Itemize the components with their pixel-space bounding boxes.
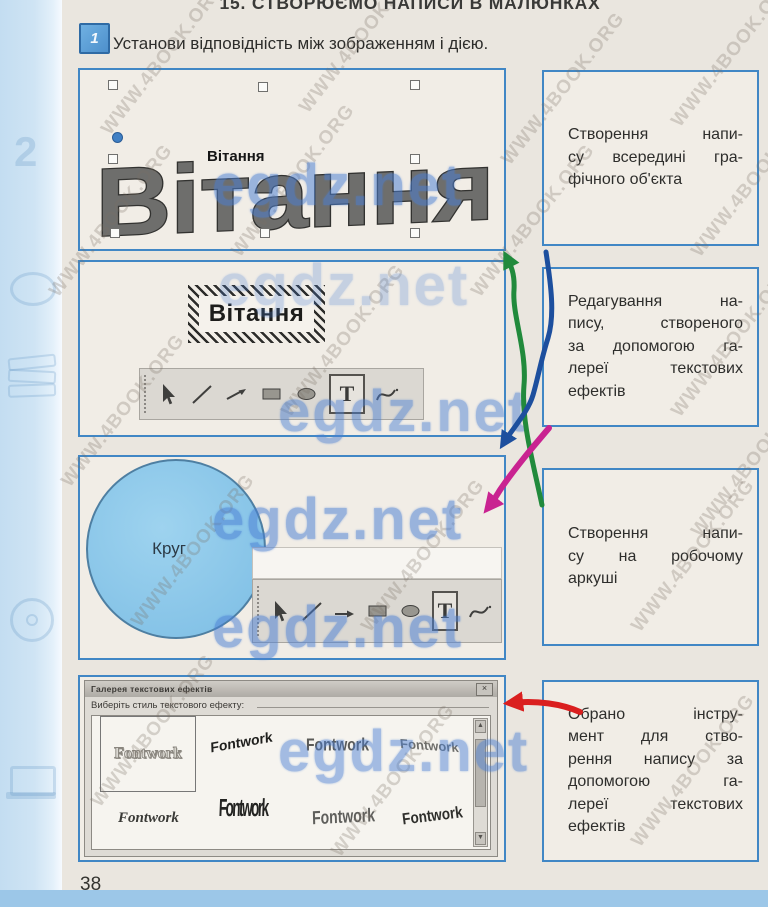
description-line: ефектів: [568, 381, 743, 404]
wordart-graphic: Вітання: [94, 122, 498, 248]
match-image-fontwork-gallery[interactable]: Галерея текстових ефектів × Виберіть сти…: [78, 675, 506, 862]
match-description-tool-selected[interactable]: Обрано інстру- мент для ство- рення напи…: [542, 680, 759, 862]
description-line: аркуші: [568, 568, 743, 591]
dialog-instruction: Виберіть стиль текстового ефекту:: [91, 700, 244, 711]
scroll-down-icon[interactable]: ▼: [475, 832, 486, 845]
description-line: ефектів: [568, 816, 743, 839]
circle-label: Круг: [152, 539, 186, 559]
description-line: пису, створеного: [568, 313, 743, 336]
description-line: су на робочому: [568, 546, 743, 569]
text-tool-button[interactable]: T: [329, 374, 365, 414]
text-frame-hatched-border: Вітання: [188, 285, 325, 343]
description-line: лереї текстових: [568, 358, 743, 381]
fontwork-style-option[interactable]: Fontwork: [399, 736, 459, 755]
workbook-page: 2 WWW.4BOOK.ORGWWW.4BOOK.ORGWWW.4BOOK.OR…: [0, 0, 768, 907]
books-icon: [8, 369, 57, 384]
scroll-up-icon[interactable]: ▲: [475, 720, 486, 733]
match-image-text-frame[interactable]: Вітання T: [78, 260, 506, 437]
selection-handle[interactable]: [260, 228, 270, 238]
match-image-circle[interactable]: Круг T: [78, 455, 506, 660]
arrow-tool-icon[interactable]: [224, 379, 250, 409]
text-frame: Вітання: [199, 296, 314, 332]
pointer-tool-icon[interactable]: [154, 379, 180, 409]
curve-tool-icon[interactable]: [374, 379, 400, 409]
rectangle-tool-icon[interactable]: [259, 379, 285, 409]
selection-handle[interactable]: [410, 228, 420, 238]
line-tool-icon[interactable]: [189, 379, 215, 409]
fontwork-style-option[interactable]: Fontwork: [218, 793, 268, 822]
description-line: допомогою га-: [568, 771, 743, 794]
description-line: Обрано інстру-: [568, 704, 743, 727]
fontwork-style-option-selected[interactable]: Fontwork: [100, 716, 196, 792]
fontwork-style-option[interactable]: Fontwork: [210, 728, 273, 755]
drawing-toolbar: T: [252, 579, 502, 643]
description-line: Редагування на-: [568, 291, 743, 314]
connector-arrow-green: [506, 256, 542, 505]
fontwork-style-option[interactable]: Fontwork: [118, 810, 179, 827]
fontwork-gallery-dialog: Галерея текстових ефектів × Виберіть сти…: [84, 680, 498, 857]
task-number-badge: 1: [79, 23, 110, 54]
frame-text: Вітання: [209, 300, 305, 328]
wordart-source-text: Вітання: [207, 148, 265, 165]
decorative-bottom-border: [0, 890, 768, 907]
page-title: 15. СТВОРЮЄМО НАПИСИ В МАЛЮНКАХ: [150, 0, 670, 14]
description-line: за допомогою га-: [568, 336, 743, 359]
fontwork-style-option[interactable]: Fontwork: [312, 804, 376, 829]
fontwork-style-option[interactable]: Fontwork: [401, 803, 463, 828]
wordart-text: Вітання: [96, 133, 494, 248]
divider: [257, 707, 489, 708]
ellipse-tool-icon[interactable]: [294, 379, 320, 409]
palette-icon: [10, 272, 56, 306]
text-tool-button[interactable]: T: [432, 591, 458, 631]
text-tool-label: T: [340, 383, 355, 405]
gallery-scrollbar[interactable]: ▲ ▼: [473, 718, 488, 847]
page-number: 38: [80, 874, 101, 896]
circle-shape: Круг: [86, 459, 266, 639]
description-line: рення напису за: [568, 749, 743, 772]
fontwork-style-option[interactable]: Fontwork: [306, 734, 369, 754]
ellipse-tool-icon[interactable]: [399, 596, 423, 626]
dialog-title-bar[interactable]: Галерея текстових ефектів ×: [85, 681, 497, 697]
text-tool-label: T: [438, 600, 453, 622]
selection-handle[interactable]: [108, 154, 118, 164]
decorative-left-border: 2: [0, 0, 62, 907]
rotate-handle[interactable]: [112, 132, 123, 143]
description-line: су всередині гра-: [568, 147, 743, 170]
curve-tool-icon[interactable]: [467, 596, 493, 626]
fontwork-gallery: Fontwork Fontwork Fontwork Fontwork Font…: [91, 715, 491, 850]
description-line: фічного об'єкта: [568, 169, 743, 192]
description-line: мент для ство-: [568, 726, 743, 749]
toolbar-window: T: [252, 547, 502, 645]
task-number: 1: [90, 30, 98, 47]
selection-handle[interactable]: [108, 80, 118, 90]
books-icon: [8, 383, 56, 398]
cd-disc-icon: [10, 598, 54, 642]
pointer-tool-icon[interactable]: [267, 596, 291, 626]
line-tool-icon[interactable]: [300, 596, 324, 626]
match-description-on-worksheet[interactable]: Створення напи- су на робочому аркуші: [542, 468, 759, 646]
match-image-wordart-selected[interactable]: Вітання Вітання: [78, 68, 506, 251]
description-line: Створення напи-: [568, 523, 743, 546]
toolbar-window-top: [252, 547, 502, 579]
description-line: лереї текстових: [568, 794, 743, 817]
dialog-title: Галерея текстових ефектів: [91, 684, 476, 694]
laptop-icon: [6, 792, 56, 799]
match-description-edit-gallery-text[interactable]: Редагування на- пису, створеного за допо…: [542, 267, 759, 427]
selection-handle[interactable]: [258, 82, 268, 92]
scrollbar-thumb[interactable]: [475, 739, 486, 807]
description-line: Створення напи-: [568, 124, 743, 147]
numeral-2-watermark-icon: 2: [14, 128, 37, 176]
selection-handle[interactable]: [410, 80, 420, 90]
selection-handle[interactable]: [110, 228, 120, 238]
drawing-toolbar: T: [139, 368, 424, 420]
match-description-inside-object[interactable]: Створення напи- су всередині гра- фічног…: [542, 70, 759, 246]
selection-handle[interactable]: [410, 154, 420, 164]
rectangle-tool-icon[interactable]: [366, 596, 390, 626]
arrow-tool-icon[interactable]: [333, 596, 357, 626]
task-instruction: Установи відповідність між зображенням і…: [113, 34, 488, 54]
dialog-close-button[interactable]: ×: [476, 683, 493, 696]
fontwork-style-option: Fontwork: [114, 745, 182, 763]
